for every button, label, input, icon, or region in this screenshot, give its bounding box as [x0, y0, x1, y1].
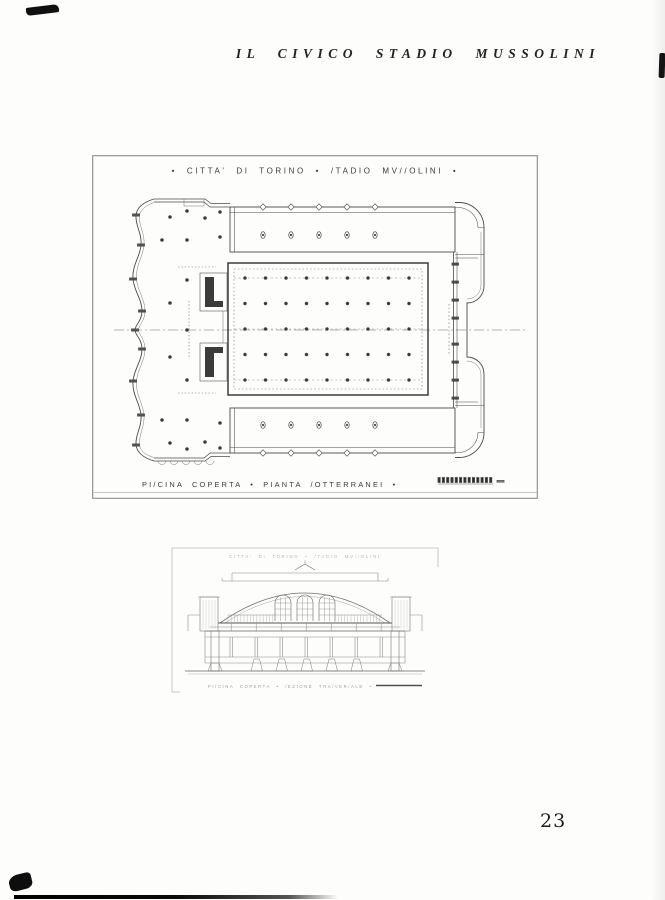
section-drawing: CITTA' DI TORINO • /TADIO MV//OLINI: [170, 545, 440, 695]
column-dot: [326, 379, 329, 382]
column-dot: [204, 217, 207, 220]
column-dot: [387, 302, 390, 305]
column-dot: [387, 328, 390, 331]
column-dot: [346, 379, 349, 382]
column-dot: [169, 356, 172, 359]
footing: [208, 663, 222, 671]
column-dot: [285, 379, 288, 382]
colonnade-column-dot: [290, 234, 291, 235]
column-dot: [387, 277, 390, 280]
colonnade-pilaster: [344, 450, 350, 456]
scale-tick: [472, 478, 474, 483]
arched-window: [275, 595, 291, 621]
column-dot: [408, 302, 411, 305]
colonnade-column-dot: [346, 424, 347, 425]
column-dot: [186, 329, 189, 332]
scale-tick: [490, 478, 492, 483]
wall-tick: [133, 214, 140, 216]
wall-tick: [452, 263, 459, 265]
column-dot: [367, 277, 370, 280]
ink-smudge-right-edge: [659, 53, 665, 78]
colonnade-pilaster: [316, 450, 322, 456]
wall-tick: [138, 244, 145, 246]
section-side-structures: [188, 597, 422, 631]
colonnade-column-dot: [318, 424, 319, 425]
colonnade-column-dot: [262, 234, 263, 235]
column-dot: [244, 302, 247, 305]
colonnade-pilaster: [344, 204, 350, 210]
wall-tick: [130, 380, 137, 382]
plan-caption: PI/CINA COPERTA • PIANTA /OTTERRANEI •: [142, 480, 397, 489]
column-dot: [244, 277, 247, 280]
column-dot: [346, 328, 349, 331]
column-dot: [305, 302, 308, 305]
stair-block-lower: [205, 347, 223, 377]
footing: [251, 659, 263, 671]
column-dot: [285, 328, 288, 331]
footing: [301, 659, 313, 671]
footing: [326, 659, 338, 671]
column-dot: [161, 419, 164, 422]
column-dot: [367, 379, 370, 382]
column-dot: [285, 353, 288, 356]
section-roof: [220, 561, 390, 624]
colonnade-column-dot: [346, 234, 347, 235]
wall-tick: [130, 278, 137, 280]
wall-tick: [138, 414, 145, 416]
column-dot: [264, 379, 267, 382]
colonnade-pilaster: [288, 450, 294, 456]
column-dot: [285, 302, 288, 305]
wall-tick: [132, 329, 139, 331]
scale-tick: [447, 478, 449, 483]
column-dot: [346, 302, 349, 305]
column-dot: [326, 277, 329, 280]
wall-tick: [139, 310, 146, 312]
pool-column-grid: [234, 277, 422, 382]
ink-smudge-top-left: [26, 4, 60, 16]
column-dot: [346, 353, 349, 356]
wall-tick: [452, 343, 459, 345]
column-dot: [326, 328, 329, 331]
scale-tick: [442, 478, 444, 483]
column-dot: [367, 353, 370, 356]
plan-title: • CITTA' DI TORINO • /TADIO MV//OLINI •: [172, 167, 459, 176]
footing: [388, 663, 402, 671]
column-dot: [408, 328, 411, 331]
column-dot: [186, 379, 189, 382]
colonnade-pilaster: [288, 204, 294, 210]
running-header: IL CIVICO STADIO MUSSOLINI: [180, 46, 600, 62]
arched-window: [319, 595, 335, 621]
colonnade-pilaster: [316, 204, 322, 210]
column-dot: [219, 236, 222, 239]
column-dot: [367, 328, 370, 331]
plan-drawing: • CITTA' DI TORINO • /TADIO MV//OLINI • …: [92, 155, 538, 499]
column-dot: [244, 328, 247, 331]
column-dot: [161, 239, 164, 242]
basement-piers: [208, 623, 402, 671]
wall-tick: [139, 348, 146, 350]
top-colonnade: [230, 207, 455, 252]
column-dot: [408, 277, 411, 280]
section-deck: [205, 615, 405, 631]
column-dot: [408, 353, 411, 356]
column-dot: [169, 442, 172, 445]
left-wing: [133, 199, 230, 465]
wall-tick: [452, 361, 459, 363]
column-dot: [186, 210, 189, 213]
column-dot: [244, 379, 247, 382]
plan-drawing-svg: • CITTA' DI TORINO • /TADIO MV//OLINI • …: [92, 155, 538, 499]
column-dot: [305, 379, 308, 382]
column-dot: [219, 211, 222, 214]
scan-bottom-line: [14, 895, 338, 899]
column-dot: [204, 441, 207, 444]
column-dot: [264, 277, 267, 280]
scale-tick: [477, 478, 479, 483]
column-dot: [305, 353, 308, 356]
column-dot: [387, 379, 390, 382]
section-caption: PI/CINA COPERTA • /EZIONE TRA/VER/ALE •: [208, 684, 373, 689]
scale-tick: [481, 478, 483, 483]
wall-tick: [452, 299, 459, 301]
column-dot: [186, 419, 189, 422]
column-dot: [244, 353, 247, 356]
column-dot: [186, 239, 189, 242]
colonnade-pilaster: [260, 450, 266, 456]
scale-label-smudge: [497, 481, 504, 483]
section-title: CITTA' DI TORINO • /TADIO MV//OLINI: [229, 554, 380, 559]
scale-tick: [485, 478, 487, 483]
scale-tick: [451, 478, 453, 483]
column-dot: [326, 302, 329, 305]
colonnade-column-dot: [374, 234, 375, 235]
column-dot: [169, 302, 172, 305]
colonnade-column-dot: [290, 424, 291, 425]
column-dot: [346, 277, 349, 280]
column-dot: [264, 302, 267, 305]
scale-tick: [468, 478, 470, 483]
wall-tick: [452, 317, 459, 319]
wall-tick: [452, 397, 459, 399]
colonnade-column-dot: [318, 234, 319, 235]
column-dot: [219, 422, 222, 425]
scale-tick: [438, 478, 440, 483]
column-dot: [408, 379, 411, 382]
column-dot: [169, 216, 172, 219]
column-dot: [186, 448, 189, 451]
column-dot: [285, 277, 288, 280]
column-dot: [367, 302, 370, 305]
scale-tick: [460, 478, 462, 483]
column-dot: [305, 328, 308, 331]
column-dot: [326, 353, 329, 356]
arched-window: [297, 595, 313, 621]
bottom-colonnade: [230, 408, 455, 453]
scale-tick: [455, 478, 457, 483]
colonnade-column-dot: [374, 424, 375, 425]
column-dot: [219, 447, 222, 450]
wall-tick: [133, 444, 140, 446]
page-number: 23: [540, 810, 566, 832]
scan-edge-shade: [651, 0, 665, 900]
wall-tick: [452, 379, 459, 381]
column-dot: [186, 279, 189, 282]
colonnade-column-dot: [262, 424, 263, 425]
footing: [351, 659, 363, 671]
colonnade-pilaster: [372, 450, 378, 456]
stair-block-upper: [205, 277, 223, 307]
colonnade-pilaster: [260, 204, 266, 210]
column-dot: [264, 353, 267, 356]
plan-scale-bar: [438, 478, 504, 485]
wall-tick: [452, 281, 459, 283]
column-dot: [264, 328, 267, 331]
colonnade-pilaster: [372, 204, 378, 210]
scale-tick: [464, 478, 466, 483]
section-arched-windows: [275, 595, 335, 621]
column-dot: [305, 277, 308, 280]
footing: [276, 659, 288, 671]
ink-smudge-bottom-left: [7, 871, 33, 892]
section-drawing-svg: CITTA' DI TORINO • /TADIO MV//OLINI: [170, 545, 440, 695]
column-dot: [387, 353, 390, 356]
